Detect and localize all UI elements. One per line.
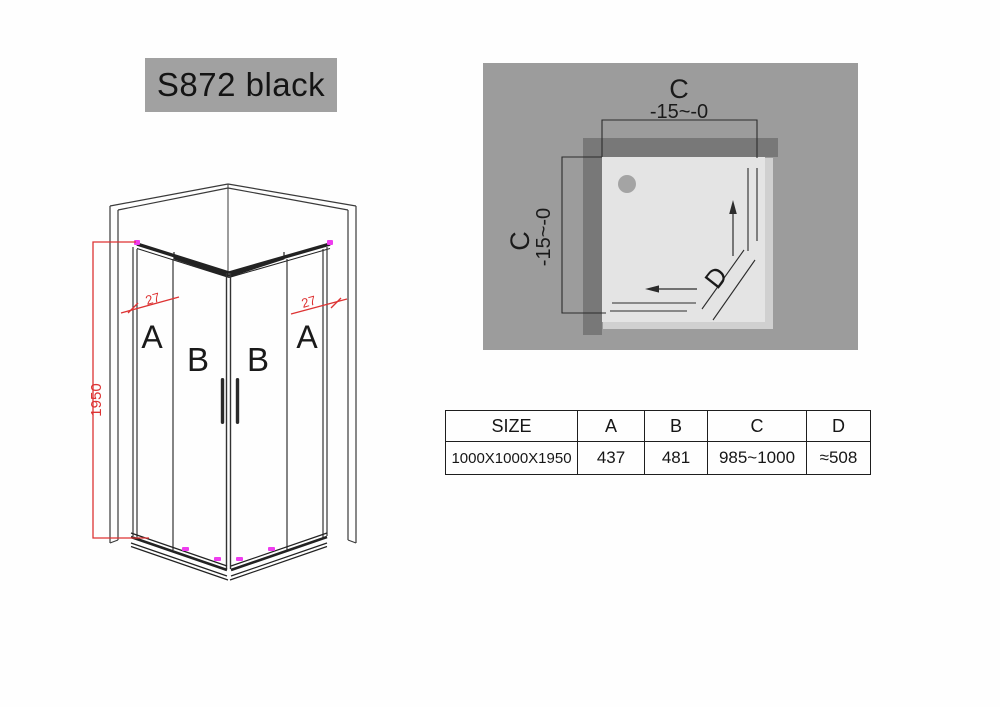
door-handle bbox=[221, 378, 224, 424]
roller-marker bbox=[182, 547, 189, 551]
right-wall-top-outer bbox=[228, 184, 356, 206]
table-row: 1000X1000X1950 437 481 985~1000 ≈508 bbox=[446, 442, 871, 475]
left-wall-top-outer bbox=[110, 184, 228, 206]
bottom-rails-group bbox=[131, 533, 327, 580]
inner-top-rail-left bbox=[174, 258, 229, 276]
plan-depth-tolerance: -15~-0 bbox=[533, 208, 555, 266]
roller-marker bbox=[268, 547, 275, 551]
model-title: S872 black bbox=[157, 66, 325, 104]
roller-markers-group bbox=[134, 240, 333, 561]
table-header-d: D bbox=[807, 411, 871, 442]
table-header-size: SIZE bbox=[446, 411, 578, 442]
panel-label-a-left: A bbox=[141, 319, 163, 355]
wall-left-band bbox=[583, 138, 602, 335]
plan-width-tolerance: -15~-0 bbox=[650, 101, 708, 123]
size-table: SIZE A B C D 1000X1000X1950 437 481 985~… bbox=[445, 410, 871, 475]
tray-edge-bottom bbox=[603, 322, 773, 329]
table-cell-d: ≈508 bbox=[807, 442, 871, 475]
tray-edge-right bbox=[765, 158, 773, 327]
dimension-frame-right: 27 bbox=[291, 292, 347, 314]
roller-marker bbox=[327, 240, 333, 245]
door-handle bbox=[236, 378, 239, 424]
roller-marker bbox=[236, 557, 243, 561]
inner-top-rail-right bbox=[229, 258, 284, 276]
plan-width-letter: C bbox=[669, 74, 689, 104]
spec-sheet: S872 black bbox=[0, 0, 1000, 707]
bottom-rail-right-3 bbox=[231, 543, 327, 576]
dimension-frame-left-value: 27 bbox=[144, 289, 162, 307]
top-rail-left-edge bbox=[137, 249, 229, 278]
table-cell-a: 437 bbox=[578, 442, 645, 475]
walls-group bbox=[110, 184, 356, 543]
left-wall-bottom bbox=[110, 540, 118, 543]
dimension-height-value: 1950 bbox=[88, 383, 105, 416]
dimension-frame-left: 27 bbox=[121, 289, 179, 313]
bottom-rail-right-4 bbox=[230, 547, 327, 581]
panel-label-a-right: A bbox=[296, 319, 318, 355]
bottom-rail-left-3 bbox=[131, 543, 227, 576]
bottom-rail-right-2 bbox=[231, 537, 327, 570]
table-header-b: B bbox=[645, 411, 708, 442]
panel-label-b-right: B bbox=[247, 341, 269, 378]
table-cell-c: 985~1000 bbox=[708, 442, 807, 475]
top-rail-left bbox=[137, 244, 229, 273]
panel-label-b-left: B bbox=[187, 341, 209, 378]
model-title-box: S872 black bbox=[145, 58, 337, 112]
plan-depth-letter: C bbox=[505, 231, 535, 251]
right-wall-bottom bbox=[348, 540, 356, 543]
table-cell-size: 1000X1000X1950 bbox=[446, 442, 578, 475]
glass-panels-group bbox=[133, 247, 327, 569]
table-header-a: A bbox=[578, 411, 645, 442]
top-rails-group bbox=[137, 244, 330, 278]
bottom-rail-right-1 bbox=[231, 533, 327, 566]
bottom-rail-left-4 bbox=[131, 547, 228, 581]
left-wall-top-inner bbox=[118, 188, 228, 210]
front-view-drawing: 1950 27 27 A B B A bbox=[75, 178, 375, 603]
wall-top-band bbox=[583, 138, 778, 157]
bottom-rail-left-2 bbox=[131, 537, 227, 570]
table-header-row: SIZE A B C D bbox=[446, 411, 871, 442]
table-cell-b: 481 bbox=[645, 442, 708, 475]
right-wall-top-inner bbox=[228, 188, 348, 210]
roller-marker bbox=[214, 557, 221, 561]
plan-view-drawing: C -15~-0 C -15~-0 D bbox=[480, 60, 862, 356]
table-header-c: C bbox=[708, 411, 807, 442]
top-rail-right-edge bbox=[229, 249, 330, 278]
drain-icon bbox=[618, 175, 636, 193]
